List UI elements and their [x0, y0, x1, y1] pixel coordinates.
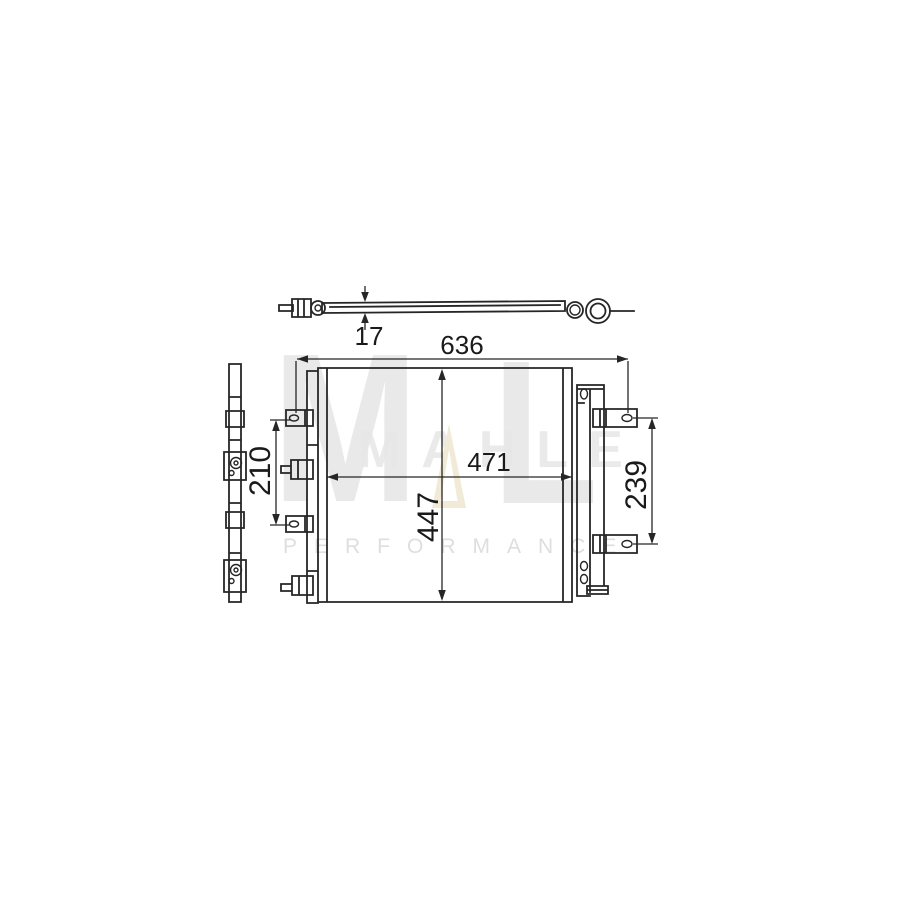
lower-left-bracket-hole — [290, 521, 299, 527]
height-arrow-up — [438, 369, 446, 380]
side-mount-hole-lower — [231, 565, 242, 576]
drier-bottom-fitting-upper — [581, 562, 588, 571]
dimension-label-17: 17 — [355, 321, 384, 351]
right-spacing-arrow-down — [648, 533, 656, 544]
dimension-label-471: 471 — [467, 447, 510, 477]
left-brackets-and-fittings — [281, 410, 313, 595]
overall-width-arrow-right — [617, 355, 628, 363]
dimension-right-bracket-spacing: 239 — [620, 418, 658, 544]
dimension-label-636: 636 — [440, 330, 483, 360]
dimension-overall-width: 636 — [296, 330, 628, 413]
upper-right-bracket-hole — [622, 415, 632, 422]
left-spacing-arrow-down — [272, 514, 280, 525]
condenser-drawing-page: M L MAHLE PERFORMANCE — [0, 0, 900, 900]
top-view-profile — [279, 299, 634, 323]
side-view-bar — [224, 364, 246, 602]
dimension-label-447: 447 — [412, 492, 445, 542]
core-width-arrow-left — [327, 473, 338, 481]
dimension-label-210: 210 — [244, 446, 277, 496]
core-width-arrow-right — [561, 473, 572, 481]
lower-right-bracket-hole — [622, 541, 632, 548]
drier-bottom-fitting-lower — [581, 575, 588, 584]
overall-width-arrow-left — [297, 355, 308, 363]
side-mount-hole-lower-center — [234, 568, 238, 572]
left-pipe-ring-inner — [315, 305, 321, 311]
dimension-thickness: 17 — [355, 286, 384, 351]
right-grommet-inner — [591, 304, 606, 319]
thickness-arrow-down — [361, 292, 369, 302]
side-mount-hole — [231, 458, 242, 469]
side-mount-hole-center — [234, 461, 238, 465]
dimension-label-239: 239 — [620, 460, 653, 510]
height-arrow-down — [438, 590, 446, 601]
drier-top-fitting — [581, 389, 588, 399]
right-spacing-arrow-up — [648, 418, 656, 429]
right-fitting-ring-inner — [570, 305, 580, 315]
side-view-profile — [224, 364, 246, 602]
condenser-technical-drawing: 17 636 471 447 210 — [0, 0, 900, 900]
left-spacing-arrow-up — [272, 420, 280, 431]
upper-left-bracket-hole — [290, 415, 299, 421]
